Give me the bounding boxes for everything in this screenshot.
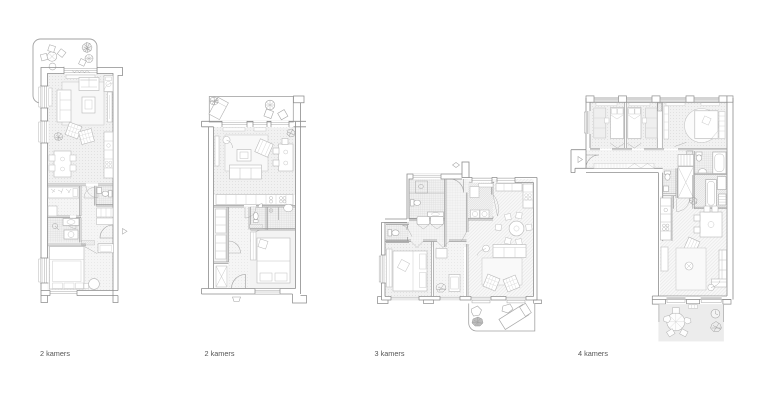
svg-text:2 kamers: 2 kamers bbox=[205, 349, 235, 358]
svg-text:4 kamers: 4 kamers bbox=[578, 349, 608, 358]
svg-text:3 kamers: 3 kamers bbox=[375, 349, 405, 358]
svg-text:2 kamers: 2 kamers bbox=[40, 349, 70, 358]
